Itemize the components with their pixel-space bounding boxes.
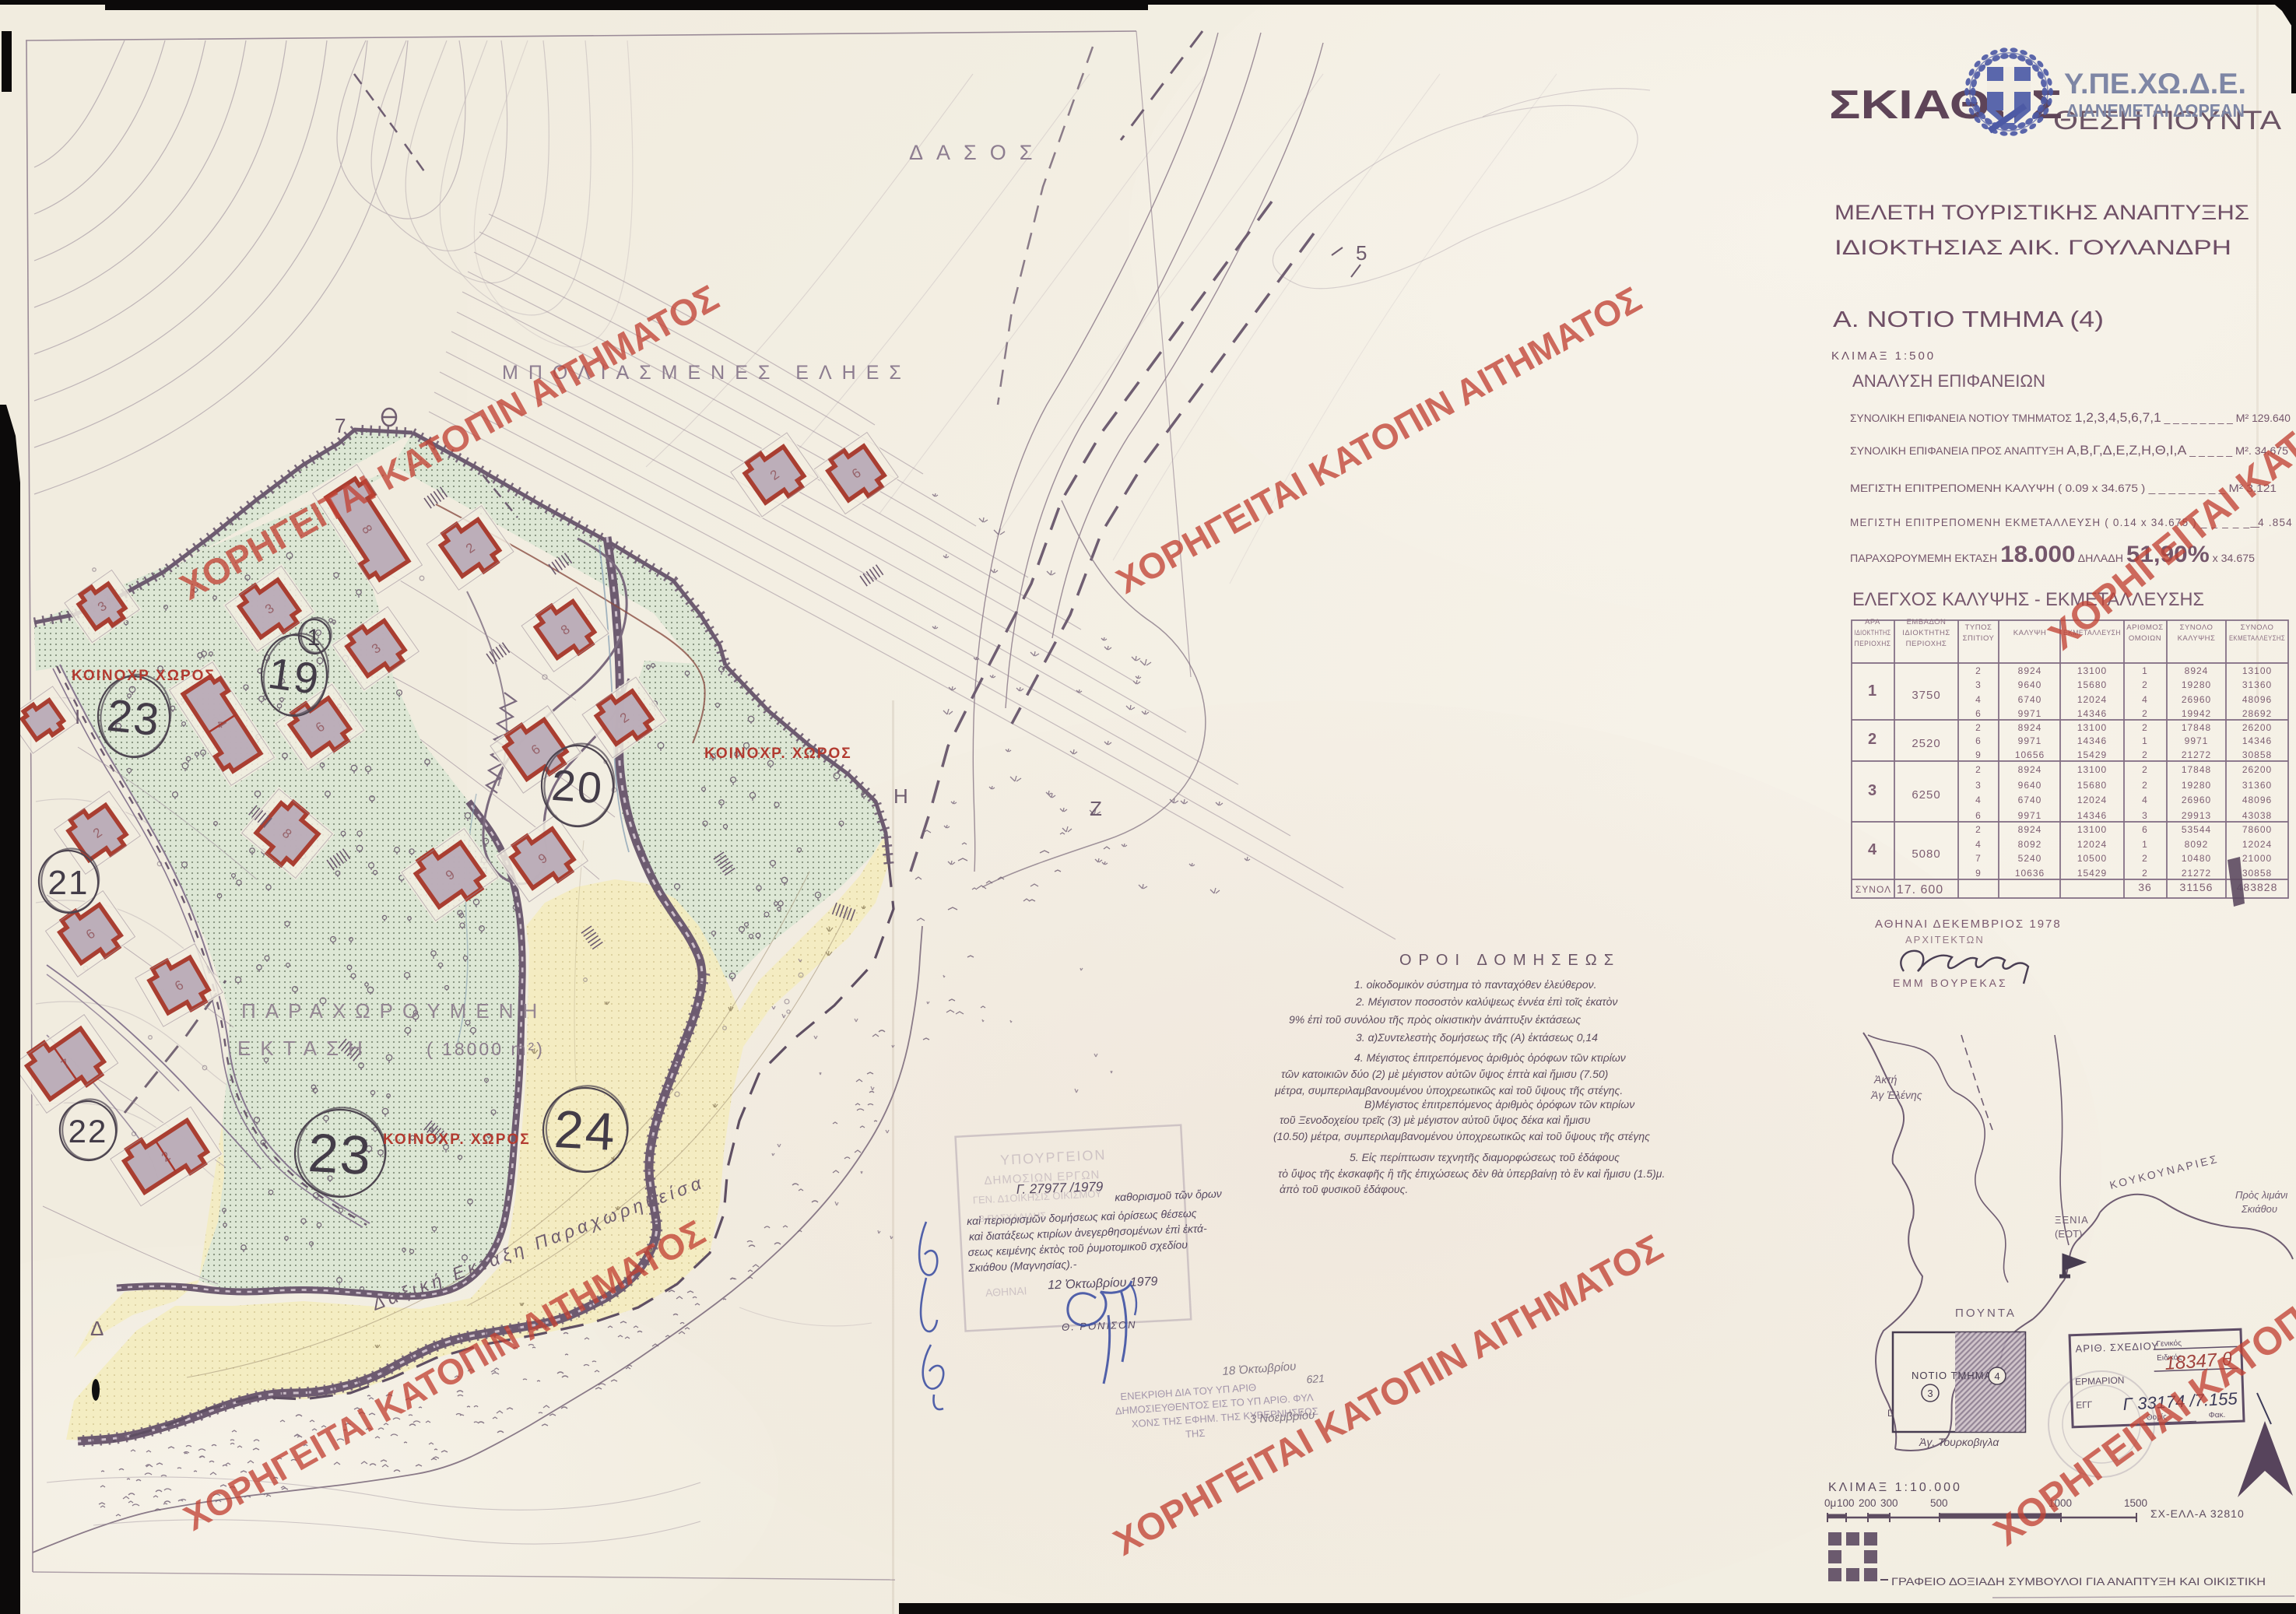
svg-text:9% ἐπὶ τοῦ συνόλου τῆς πρὸς ο: 9% ἐπὶ τοῦ συνόλου τῆς πρὸς οἰκιστικὴν ἀ… <box>1289 1013 1581 1026</box>
svg-text:4: 4 <box>2142 694 2148 705</box>
svg-text:ΙΔΙΟΚΤΗΣΙΑΣ ΑΙΚ. ΓΟΥΛΑΝΔΡΗ: ΙΔΙΟΚΤΗΣΙΑΣ ΑΙΚ. ΓΟΥΛΑΝΔΡΗ <box>1834 236 2231 259</box>
svg-text:13100: 13100 <box>2077 722 2107 733</box>
svg-text:53544: 53544 <box>2182 824 2211 835</box>
svg-text:9: 9 <box>1975 868 1982 879</box>
svg-text:2: 2 <box>1975 665 1982 676</box>
svg-text:Δ: Δ <box>90 1317 104 1340</box>
svg-text:19280: 19280 <box>2182 780 2211 791</box>
svg-text:Φακ.: Φακ. <box>2209 1411 2226 1420</box>
svg-text:2: 2 <box>2142 749 2148 760</box>
svg-text:8924: 8924 <box>2018 665 2042 676</box>
svg-text:19280: 19280 <box>2182 679 2211 690</box>
svg-text:ΝΟΤΙΟ ΤΜΗΜΑ: ΝΟΤΙΟ ΤΜΗΜΑ <box>1912 1370 1992 1381</box>
svg-text:4: 4 <box>2142 795 2148 805</box>
svg-text:ΚΛΙΜΑΞ 1:500: ΚΛΙΜΑΞ 1:500 <box>1831 349 1936 363</box>
svg-text:ΚΟΙΝΟΧΡ. ΧΩΡΟΣ: ΚΟΙΝΟΧΡ. ΧΩΡΟΣ <box>383 1132 531 1148</box>
svg-text:9971: 9971 <box>2018 810 2042 821</box>
svg-text:1: 1 <box>307 625 322 651</box>
svg-text:Ἁγ Ἑλένης: Ἁγ Ἑλένης <box>1870 1089 1922 1101</box>
svg-text:17848: 17848 <box>2182 764 2211 775</box>
svg-text:15680: 15680 <box>2077 780 2107 791</box>
svg-text:78600: 78600 <box>2242 824 2272 835</box>
svg-text:Γενικός: Γενικός <box>2156 1339 2182 1349</box>
svg-text:14346: 14346 <box>2077 735 2107 746</box>
svg-text:τῶν κατοικιῶν δύο (2) μὲ μέγισ: τῶν κατοικιῶν δύο (2) μὲ μέγιστον αὐτῶν … <box>1281 1068 1608 1080</box>
svg-text:Ἀκτή: Ἀκτή <box>1873 1073 1898 1086</box>
svg-text:6: 6 <box>1975 735 1982 746</box>
svg-text:3: 3 <box>1927 1388 1933 1399</box>
svg-text:13100: 13100 <box>2077 824 2107 835</box>
svg-text:ἀπὸ τοῦ φυσικοῦ ἐδάφους.: ἀπὸ τοῦ φυσικοῦ ἐδάφους. <box>1280 1183 1408 1195</box>
svg-text:23: 23 <box>307 1122 374 1186</box>
svg-text:10480: 10480 <box>2182 853 2211 864</box>
svg-text:15429: 15429 <box>2077 868 2107 879</box>
svg-text:2: 2 <box>2142 708 2148 719</box>
svg-text:200: 200 <box>1859 1497 1876 1509</box>
svg-text:2: 2 <box>2142 853 2148 864</box>
svg-text:6250: 6250 <box>1912 788 1940 802</box>
svg-text:7: 7 <box>335 414 346 437</box>
svg-text:2: 2 <box>1975 722 1982 733</box>
svg-text:1. οἰκοδομικὸν σύστημα τὸ παν: 1. οἰκοδομικὸν σύστημα τὸ πανταχόθεν ἐλε… <box>1354 978 1597 991</box>
svg-text:8924: 8924 <box>2018 722 2042 733</box>
svg-text:26200: 26200 <box>2242 722 2272 733</box>
svg-text:ΕΡΜΑΡΙΟΝ: ΕΡΜΑΡΙΟΝ <box>2075 1374 2125 1387</box>
svg-text:48096: 48096 <box>2242 694 2272 705</box>
svg-text:τὸ ὕψος τῆς ἐκσκαφῆς ἢ τῆς ἐπι: τὸ ὕψος τῆς ἐκσκαφῆς ἢ τῆς ἐπιχώσεως δὲν… <box>1278 1167 1665 1180</box>
svg-text:17. 600: 17. 600 <box>1897 883 1943 896</box>
svg-text:21000: 21000 <box>2242 853 2272 864</box>
svg-text:5240: 5240 <box>2018 853 2042 864</box>
svg-text:ΑΡΙΘΜΟΣ: ΑΡΙΘΜΟΣ <box>2126 623 2163 632</box>
svg-text:500: 500 <box>1930 1497 1948 1509</box>
svg-text:3: 3 <box>1975 780 1982 791</box>
svg-text:22: 22 <box>68 1113 108 1149</box>
svg-text:Β)Μέγιστος ἐπιτρεπόμενος ἀριθμ: Β)Μέγιστος ἐπιτρεπόμενος ἀριθμὸς ὀρόφων … <box>1364 1098 1634 1111</box>
svg-text:ΑΡΑ: ΑΡΑ <box>1865 618 1880 626</box>
svg-text:6: 6 <box>1975 810 1982 821</box>
svg-text:29913: 29913 <box>2182 810 2211 821</box>
svg-text:1: 1 <box>2142 839 2148 850</box>
svg-text:4: 4 <box>1868 841 1877 858</box>
svg-text:Υ.ΠΕ.ΧΩ.Δ.Ε.: Υ.ΠΕ.ΧΩ.Δ.Ε. <box>2064 68 2246 100</box>
svg-text:8092: 8092 <box>2185 839 2209 850</box>
svg-text:7: 7 <box>1975 853 1982 864</box>
svg-text:30858: 30858 <box>2242 749 2272 760</box>
svg-text:10656: 10656 <box>2015 749 2045 760</box>
svg-text:30858: 30858 <box>2242 868 2272 879</box>
svg-text:ΤΥΠΟΣ: ΤΥΠΟΣ <box>1965 623 1992 632</box>
svg-text:9: 9 <box>1975 749 1982 760</box>
svg-text:13100: 13100 <box>2242 665 2272 676</box>
svg-text:Πρὸς λιμάνι: Πρὸς λιμάνι <box>2235 1189 2287 1201</box>
svg-text:2: 2 <box>2142 868 2148 879</box>
svg-text:ΕΜΜ ΒΟΥΡΕΚΑΣ: ΕΜΜ ΒΟΥΡΕΚΑΣ <box>1893 977 2008 989</box>
svg-text:2: 2 <box>2142 780 2148 791</box>
svg-text:ΑΘΗΝΑΙ: ΑΘΗΝΑΙ <box>985 1284 1027 1299</box>
svg-text:ΚΟΙΝΟΧΡ. ΧΩΡΟΣ: ΚΟΙΝΟΧΡ. ΧΩΡΟΣ <box>704 746 852 762</box>
svg-text:48096: 48096 <box>2242 795 2272 805</box>
svg-text:23: 23 <box>104 690 163 746</box>
svg-text:ΟΡΟΙ ΔΟΜΗΣΕΩΣ: ΟΡΟΙ ΔΟΜΗΣΕΩΣ <box>1399 952 1620 969</box>
svg-text:Z: Z <box>1090 797 1102 820</box>
svg-text:5. Εἰς περίπτωσιν τεχνητῆς δια: 5. Εἰς περίπτωσιν τεχνητῆς διαμορφώσεως … <box>1350 1151 1620 1163</box>
svg-text:2: 2 <box>2142 679 2148 690</box>
svg-text:6740: 6740 <box>2018 694 2042 705</box>
svg-text:0μ: 0μ <box>1824 1497 1836 1509</box>
svg-text:ΞΕΝΙΑ: ΞΕΝΙΑ <box>2055 1214 2089 1226</box>
svg-text:21272: 21272 <box>2182 749 2211 760</box>
svg-text:1: 1 <box>1868 682 1877 700</box>
svg-text:Α. ΝΟΤΙΟ ΤΜΗΜΑ (4): Α. ΝΟΤΙΟ ΤΜΗΜΑ (4) <box>1833 307 2104 332</box>
svg-text:Γ. 27977 /1979: Γ. 27977 /1979 <box>1016 1179 1104 1197</box>
svg-text:ΣΧ-ΕΛΛ-Α 32810: ΣΧ-ΕΛΛ-Α 32810 <box>2150 1507 2245 1520</box>
svg-text:1500: 1500 <box>2124 1497 2147 1509</box>
svg-text:Σκιάθου: Σκιάθου <box>2241 1203 2277 1215</box>
svg-text:31156: 31156 <box>2180 881 2213 893</box>
svg-text:ΕΓΓ: ΕΓΓ <box>2076 1399 2093 1411</box>
svg-text:20: 20 <box>550 760 606 812</box>
svg-text:19942: 19942 <box>2182 708 2211 719</box>
svg-text:ΣΥΝΟΛΟ: ΣΥΝΟΛΟ <box>2241 623 2274 632</box>
svg-text:ΠΑΡΑΧΩΡΟΥΜΕΝΗ: ΠΑΡΑΧΩΡΟΥΜΕΝΗ <box>241 999 546 1023</box>
svg-text:τοῦ Ξενοδοχείου τρεῖς (3) μὲ μ: τοῦ Ξενοδοχείου τρεῖς (3) μὲ μέγιστον αὐ… <box>1280 1114 1591 1126</box>
svg-text:I: I <box>75 705 80 728</box>
svg-text:3: 3 <box>1868 782 1877 799</box>
svg-text:ΠΟΥΝΤΑ: ΠΟΥΝΤΑ <box>1955 1307 2017 1320</box>
svg-text:ΙΔΙΟΚΤΗΤΗΣ: ΙΔΙΟΚΤΗΤΗΣ <box>1902 629 1950 637</box>
svg-text:12024: 12024 <box>2077 839 2107 850</box>
svg-text:9971: 9971 <box>2185 735 2209 746</box>
svg-text:4: 4 <box>1975 839 1982 850</box>
svg-text:2: 2 <box>1975 764 1982 775</box>
svg-text:ΑΝΑΛΥΣΗ ΕΠΙΦΑΝΕΙΩΝ: ΑΝΑΛΥΣΗ ΕΠΙΦΑΝΕΙΩΝ <box>1852 371 2045 391</box>
svg-text:μέτρα, συμπεριλαμβανουμένου ὑπ: μέτρα, συμπεριλαμβανουμένου ὑποχρεωτικῶς… <box>1274 1084 1623 1096</box>
svg-text:ΣΥΝΟΛΟ: ΣΥΝΟΛΟ <box>2180 623 2213 632</box>
svg-text:21: 21 <box>48 864 90 902</box>
svg-text:( 18000 m²): ( 18000 m²) <box>427 1039 545 1059</box>
svg-text:3: 3 <box>2142 810 2148 821</box>
svg-text:8924: 8924 <box>2018 824 2042 835</box>
svg-text:(ΕΟΤ): (ΕΟΤ) <box>2055 1228 2082 1240</box>
svg-text:43038: 43038 <box>2242 810 2272 821</box>
svg-text:10500: 10500 <box>2077 853 2107 864</box>
svg-text:24: 24 <box>553 1100 618 1162</box>
svg-text:ΕΚΜΕΤΑΛΛΕΥΣΗΣ: ΕΚΜΕΤΑΛΛΕΥΣΗΣ <box>2229 634 2285 643</box>
svg-text:6: 6 <box>1975 708 1982 719</box>
svg-text:ΓΡΑΦΕΙΟ ΔΟΞΙΑΔΗ ΣΥΜΒΟΥΛΟΙ: ΓΡΑΦΕΙΟ ΔΟΞΙΑΔΗ ΣΥΜΒΟΥΛΟΙ ΓΙΑ ΑΝΑΠΤΥΞΗ Κ… <box>1891 1575 2266 1588</box>
svg-text:12024: 12024 <box>2242 839 2272 850</box>
svg-text:26200: 26200 <box>2242 764 2272 775</box>
svg-text:5080: 5080 <box>1912 847 1940 861</box>
svg-text:2: 2 <box>2142 764 2148 775</box>
svg-text:300: 300 <box>1880 1497 1898 1509</box>
svg-text:ΣΥΝΟΛΙΚΗ ΕΠΙΦΑΝΕΙΑ ΝΟΤΙΟΥ ΤΜΗΜ: ΣΥΝΟΛΙΚΗ ΕΠΙΦΑΝΕΙΑ ΝΟΤΙΟΥ ΤΜΗΜΑΤΟΣ 1,2,3… <box>1850 410 2291 425</box>
svg-text:5: 5 <box>1356 241 1367 265</box>
svg-text:26960: 26960 <box>2182 694 2211 705</box>
svg-text:4: 4 <box>1994 1370 1999 1382</box>
svg-text:ΚΟΙΝΟΧΡ ΧΩΡΟΣ: ΚΟΙΝΟΧΡ ΧΩΡΟΣ <box>72 668 216 684</box>
svg-text:14346: 14346 <box>2077 708 2107 719</box>
svg-text:ΣΠΙΤΙΟΥ: ΣΠΙΤΙΟΥ <box>1963 634 1995 643</box>
svg-text:8924: 8924 <box>2185 665 2209 676</box>
svg-text:9640: 9640 <box>2018 780 2042 791</box>
svg-text:9971: 9971 <box>2018 708 2042 719</box>
svg-text:ΟΜΟΙΩΝ: ΟΜΟΙΩΝ <box>2129 634 2161 643</box>
svg-text:36: 36 <box>2138 881 2152 893</box>
svg-text:31360: 31360 <box>2242 679 2272 690</box>
svg-text:ΑΘΗΝΑΙ ΔΕΚΕΜΒΡΙΟΣ 1978: ΑΘΗΝΑΙ ΔΕΚΕΜΒΡΙΟΣ 1978 <box>1875 918 2062 931</box>
svg-text:9640: 9640 <box>2018 679 2042 690</box>
svg-text:8092: 8092 <box>2018 839 2042 850</box>
svg-text:15429: 15429 <box>2077 749 2107 760</box>
svg-text:6: 6 <box>2142 824 2148 835</box>
svg-text:12024: 12024 <box>2077 694 2107 705</box>
svg-text:2: 2 <box>1868 731 1877 748</box>
svg-text:6740: 6740 <box>2018 795 2042 805</box>
svg-text:4. Μέγιστος ἐπιτρεπόμενος ἀρ: 4. Μέγιστος ἐπιτρεπόμενος ἀριθμὸς ὀρόφων… <box>1354 1051 1626 1064</box>
svg-text:621: 621 <box>1306 1372 1325 1386</box>
svg-text:H: H <box>893 784 908 808</box>
svg-text:10636: 10636 <box>2015 868 2045 879</box>
svg-text:21272: 21272 <box>2182 868 2211 879</box>
svg-text:26960: 26960 <box>2182 795 2211 805</box>
svg-text:ΣΥΝΟΛ: ΣΥΝΟΛ <box>1855 884 1891 895</box>
svg-text:14346: 14346 <box>2242 735 2272 746</box>
svg-text:ΤΗΣ: ΤΗΣ <box>1185 1427 1206 1440</box>
svg-text:D: D <box>1887 1408 1894 1419</box>
svg-text:ΚΛΙΜΑΞ 1:10.000: ΚΛΙΜΑΞ 1:10.000 <box>1828 1481 1962 1494</box>
svg-text:ΔΙΑΝΕΜΕΤΑΙ ΔΩΡΕΑΝ: ΔΙΑΝΕΜΕΤΑΙ ΔΩΡΕΑΝ <box>2066 100 2245 121</box>
svg-text:12024: 12024 <box>2077 795 2107 805</box>
svg-text:9971: 9971 <box>2018 735 2042 746</box>
svg-text:3: 3 <box>1975 679 1982 690</box>
svg-text:ΕΜΒΑΔΟΝ: ΕΜΒΑΔΟΝ <box>1907 618 1947 626</box>
svg-text:ΕΛΕΓΧΟΣ ΚΑΛΥΨΗΣ - ΕΚΜΕΤΑΛΛΕΥΣΗ: ΕΛΕΓΧΟΣ ΚΑΛΥΨΗΣ - ΕΚΜΕΤΑΛΛΕΥΣΗΣ <box>1852 589 2204 610</box>
svg-text:19: 19 <box>265 648 323 704</box>
svg-text:4: 4 <box>1975 694 1982 705</box>
svg-text:13100: 13100 <box>2077 665 2107 676</box>
svg-text:28692: 28692 <box>2242 708 2272 719</box>
svg-text:ΠΕΡΙΟΧΗΣ: ΠΕΡΙΟΧΗΣ <box>1855 640 1891 648</box>
svg-text:1: 1 <box>2142 735 2148 746</box>
svg-text:ΔΑΣΟΣ: ΔΑΣΟΣ <box>909 141 1045 164</box>
svg-text:ΠΕΡΙΟΧΗΣ: ΠΕΡΙΟΧΗΣ <box>1906 640 1947 648</box>
svg-text:31360: 31360 <box>2242 780 2272 791</box>
svg-text:1: 1 <box>2142 665 2148 676</box>
svg-text:ΙΔΙΟΚΤΗΤΗΣ: ΙΔΙΟΚΤΗΤΗΣ <box>1855 629 1891 637</box>
svg-text:17848: 17848 <box>2182 722 2211 733</box>
svg-text:13100: 13100 <box>2077 764 2107 775</box>
svg-text:8924: 8924 <box>2018 764 2042 775</box>
svg-text:15680: 15680 <box>2077 679 2107 690</box>
svg-text:2: 2 <box>1975 824 1982 835</box>
svg-text:3. α)Συντελεστὴς δομήσεως τῆς: 3. α)Συντελεστὴς δομήσεως τῆς (Α) ἐκτάσε… <box>1356 1031 1598 1044</box>
svg-text:Ἁγ. Τουρκοβιγλα: Ἁγ. Τουρκοβιγλα <box>1919 1436 1999 1448</box>
svg-text:100: 100 <box>1837 1497 1855 1509</box>
svg-text:ΣΥΝΟΛΙΚΗ ΕΠΙΦΑΝΕΙΑ ΠΡΟΣ ΑΝΑΠΤΥ: ΣΥΝΟΛΙΚΗ ΕΠΙΦΑΝΕΙΑ ΠΡΟΣ ΑΝΑΠΤΥΞΗ Α,Β,Γ,Δ… <box>1850 443 2288 458</box>
svg-text:3750: 3750 <box>1912 689 1940 702</box>
svg-text:(10.50) μέτρα, συμπεριλαμβανομ: (10.50) μέτρα, συμπεριλαμβανομένου ὑποχρ… <box>1273 1130 1650 1142</box>
svg-text:ΚΑΛΥΨΗΣ: ΚΑΛΥΨΗΣ <box>2178 634 2216 643</box>
svg-text:2: 2 <box>2142 722 2148 733</box>
svg-text:ΕΚΤΑΣΗ: ΕΚΤΑΣΗ <box>237 1037 372 1060</box>
svg-text:4: 4 <box>1975 795 1982 805</box>
svg-text:ΜΕΛΕΤΗ ΤΟΥΡΙΣΤΙΚΗΣ ΑΝΑΠΤΥΞΗΣ: ΜΕΛΕΤΗ ΤΟΥΡΙΣΤΙΚΗΣ ΑΝΑΠΤΥΞΗΣ <box>1834 201 2249 224</box>
svg-text:ΑΡΧΙΤΕΚΤΩΝ: ΑΡΧΙΤΕΚΤΩΝ <box>1905 934 1985 946</box>
svg-text:14346: 14346 <box>2077 810 2107 821</box>
svg-text:ΚΑΛΥΨΗ: ΚΑΛΥΨΗ <box>2013 629 2046 637</box>
svg-text:2520: 2520 <box>1912 737 1940 750</box>
svg-text:2. Μέγιστον ποσοστὸν καλύψεως: 2. Μέγιστον ποσοστὸν καλύψεως ἐννέα ἐπὶ … <box>1355 995 1617 1008</box>
